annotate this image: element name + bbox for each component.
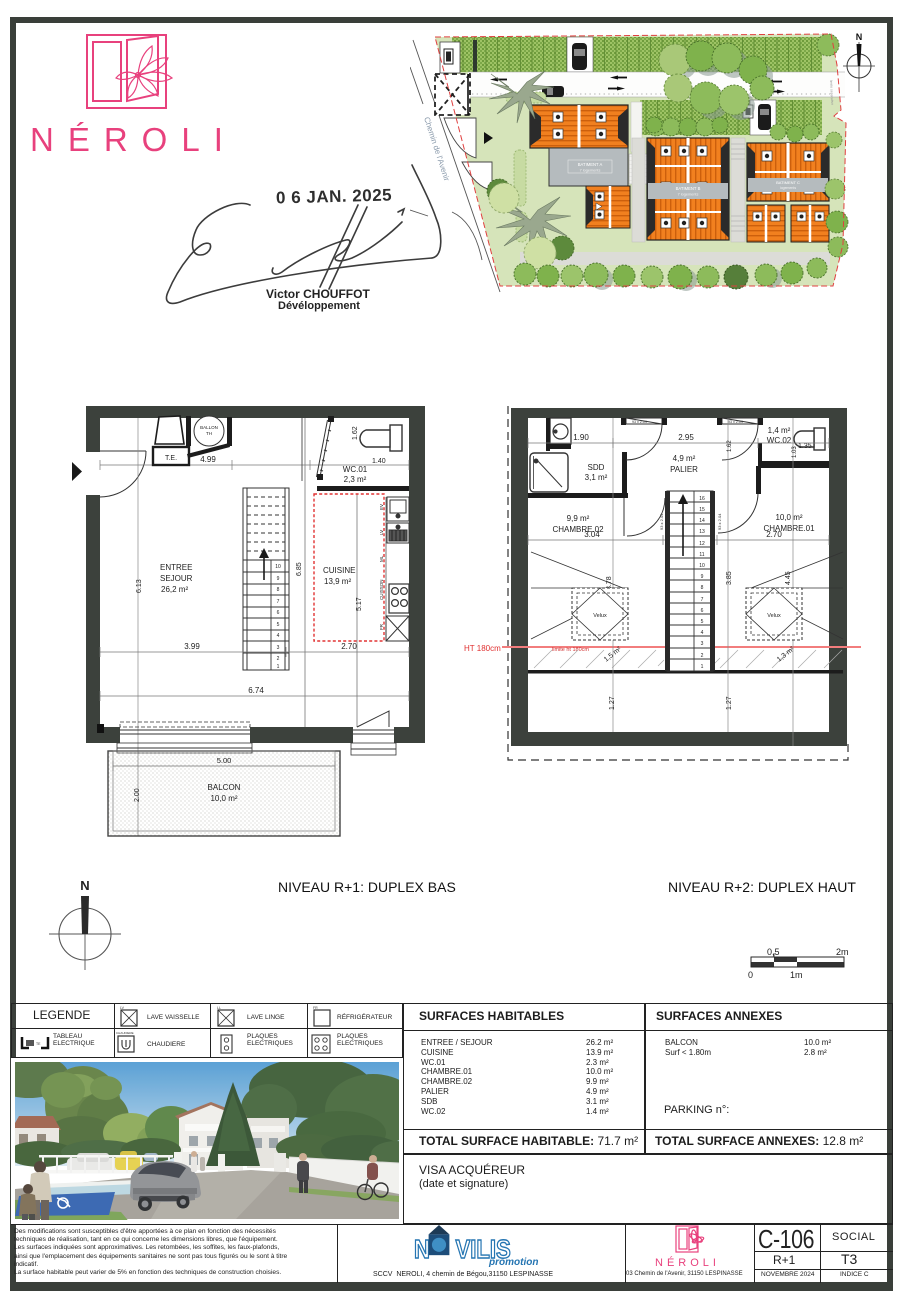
svg-text:3.99: 3.99 <box>184 642 200 651</box>
svg-text:4: 4 <box>277 633 280 639</box>
svg-text:16: 16 <box>699 496 705 502</box>
svg-text:4.99: 4.99 <box>200 455 216 464</box>
svg-text:HT 180cm: HT 180cm <box>464 644 501 653</box>
svg-text:2: 2 <box>701 653 704 659</box>
svg-text:8: 8 <box>701 585 704 591</box>
svg-text:1.62: 1.62 <box>352 426 359 440</box>
svg-text:0: 0 <box>748 970 753 980</box>
svg-text:WC.01: WC.01 <box>343 465 368 474</box>
svg-text:5: 5 <box>701 619 704 625</box>
svg-text:1m: 1m <box>790 970 803 980</box>
svg-text:3.04: 3.04 <box>584 530 600 539</box>
svg-text:TH: TH <box>206 431 212 436</box>
svg-text:2m: 2m <box>836 947 849 957</box>
svg-text:4: 4 <box>701 630 704 636</box>
svg-text:2.00: 2.00 <box>134 788 141 802</box>
svg-text:6: 6 <box>701 608 704 614</box>
svg-text:10,0 m²: 10,0 m² <box>775 513 802 522</box>
svg-text:93 x 2.04: 93 x 2.04 <box>728 420 743 424</box>
svg-text:7 logements: 7 logements <box>580 169 601 173</box>
svg-text:BALLON: BALLON <box>200 425 218 430</box>
svg-text:ML: ML <box>379 555 384 562</box>
svg-text:N: N <box>856 32 863 42</box>
svg-text:1: 1 <box>701 664 704 670</box>
svg-text:8: 8 <box>277 587 280 593</box>
svg-text:7: 7 <box>277 599 280 605</box>
svg-text:1.27: 1.27 <box>726 696 733 710</box>
svg-text:logements: logements <box>780 186 796 190</box>
svg-text:6.85: 6.85 <box>296 562 303 576</box>
svg-text:9: 9 <box>701 574 704 580</box>
svg-text:N: N <box>80 878 89 893</box>
svg-text:CUISSON: CUISSON <box>379 579 384 600</box>
svg-text:9,9 m²: 9,9 m² <box>567 514 590 523</box>
svg-text:Velux: Velux <box>593 613 607 619</box>
svg-text:SEJOUR: SEJOUR <box>160 574 193 583</box>
svg-text:1,4 m²: 1,4 m² <box>768 426 791 435</box>
svg-text:1.03: 1.03 <box>792 446 798 458</box>
svg-text:BATIMENT C: BATIMENT C <box>776 180 800 185</box>
svg-text:6.74: 6.74 <box>248 686 264 695</box>
svg-text:ENTREE: ENTREE <box>160 563 192 572</box>
svg-text:1.35: 1.35 <box>798 443 812 450</box>
svg-text:3,1 m²: 3,1 m² <box>585 473 608 482</box>
svg-text:10: 10 <box>699 563 705 569</box>
svg-text:7 logements: 7 logements <box>678 193 699 197</box>
svg-text:13: 13 <box>699 529 705 535</box>
svg-text:1.90: 1.90 <box>573 433 589 442</box>
svg-text:12: 12 <box>699 541 705 547</box>
svg-text:Velux: Velux <box>767 613 781 619</box>
svg-text:6: 6 <box>277 610 280 616</box>
svg-text:5.17: 5.17 <box>356 597 363 611</box>
svg-text:1: 1 <box>277 664 280 670</box>
svg-text:2: 2 <box>277 656 280 662</box>
svg-text:14: 14 <box>699 518 705 524</box>
svg-text:9: 9 <box>277 576 280 582</box>
svg-text:BALCON: BALCON <box>208 783 241 792</box>
svg-text:4,9 m²: 4,9 m² <box>673 454 696 463</box>
svg-text:5.00: 5.00 <box>217 756 232 765</box>
svg-text:11: 11 <box>699 552 704 558</box>
svg-text:BATIMENT A: BATIMENT A <box>578 162 603 167</box>
svg-text:LV: LV <box>379 530 384 535</box>
svg-text:2.70: 2.70 <box>766 530 782 539</box>
svg-text:PALIER: PALIER <box>670 465 698 474</box>
svg-text:93 x 2.04: 93 x 2.04 <box>717 513 722 530</box>
svg-text:BATIMENT B: BATIMENT B <box>676 186 701 191</box>
svg-text:6.13: 6.13 <box>136 579 143 593</box>
svg-text:2.95: 2.95 <box>678 433 694 442</box>
svg-text:13,9 m²: 13,9 m² <box>324 577 351 586</box>
svg-text:0,5: 0,5 <box>767 947 780 957</box>
svg-text:CHAUDIERE: CHAUDIERE <box>116 1031 134 1035</box>
svg-text:93 x 2.04: 93 x 2.04 <box>632 420 647 424</box>
svg-text:FR: FR <box>379 623 384 630</box>
svg-text:3: 3 <box>277 645 280 651</box>
svg-text:7: 7 <box>701 597 704 603</box>
svg-text:1.62: 1.62 <box>727 440 733 452</box>
svg-text:EV: EV <box>379 504 384 510</box>
svg-text:TE: TE <box>36 1042 41 1046</box>
svg-text:1.40: 1.40 <box>372 458 386 465</box>
svg-text:SDD: SDD <box>588 463 605 472</box>
svg-text:5: 5 <box>277 622 280 628</box>
svg-text:26,2 m²: 26,2 m² <box>161 585 188 594</box>
svg-text:10,0 m²: 10,0 m² <box>210 794 237 803</box>
svg-text:limite ht 180cm: limite ht 180cm <box>552 647 589 653</box>
svg-text:WC.02: WC.02 <box>767 436 792 445</box>
svg-text:15: 15 <box>699 507 705 513</box>
svg-text:10: 10 <box>275 564 281 570</box>
svg-text:CUISINE: CUISINE <box>323 566 355 575</box>
svg-text:2.70: 2.70 <box>341 642 357 651</box>
svg-text:3: 3 <box>701 641 704 647</box>
svg-text:T.E.: T.E. <box>165 455 177 462</box>
svg-text:2,3 m²: 2,3 m² <box>344 475 367 484</box>
svg-text:3.85: 3.85 <box>726 571 733 585</box>
svg-text:93 x 2.04: 93 x 2.04 <box>659 513 664 530</box>
svg-text:1.27: 1.27 <box>609 696 616 710</box>
